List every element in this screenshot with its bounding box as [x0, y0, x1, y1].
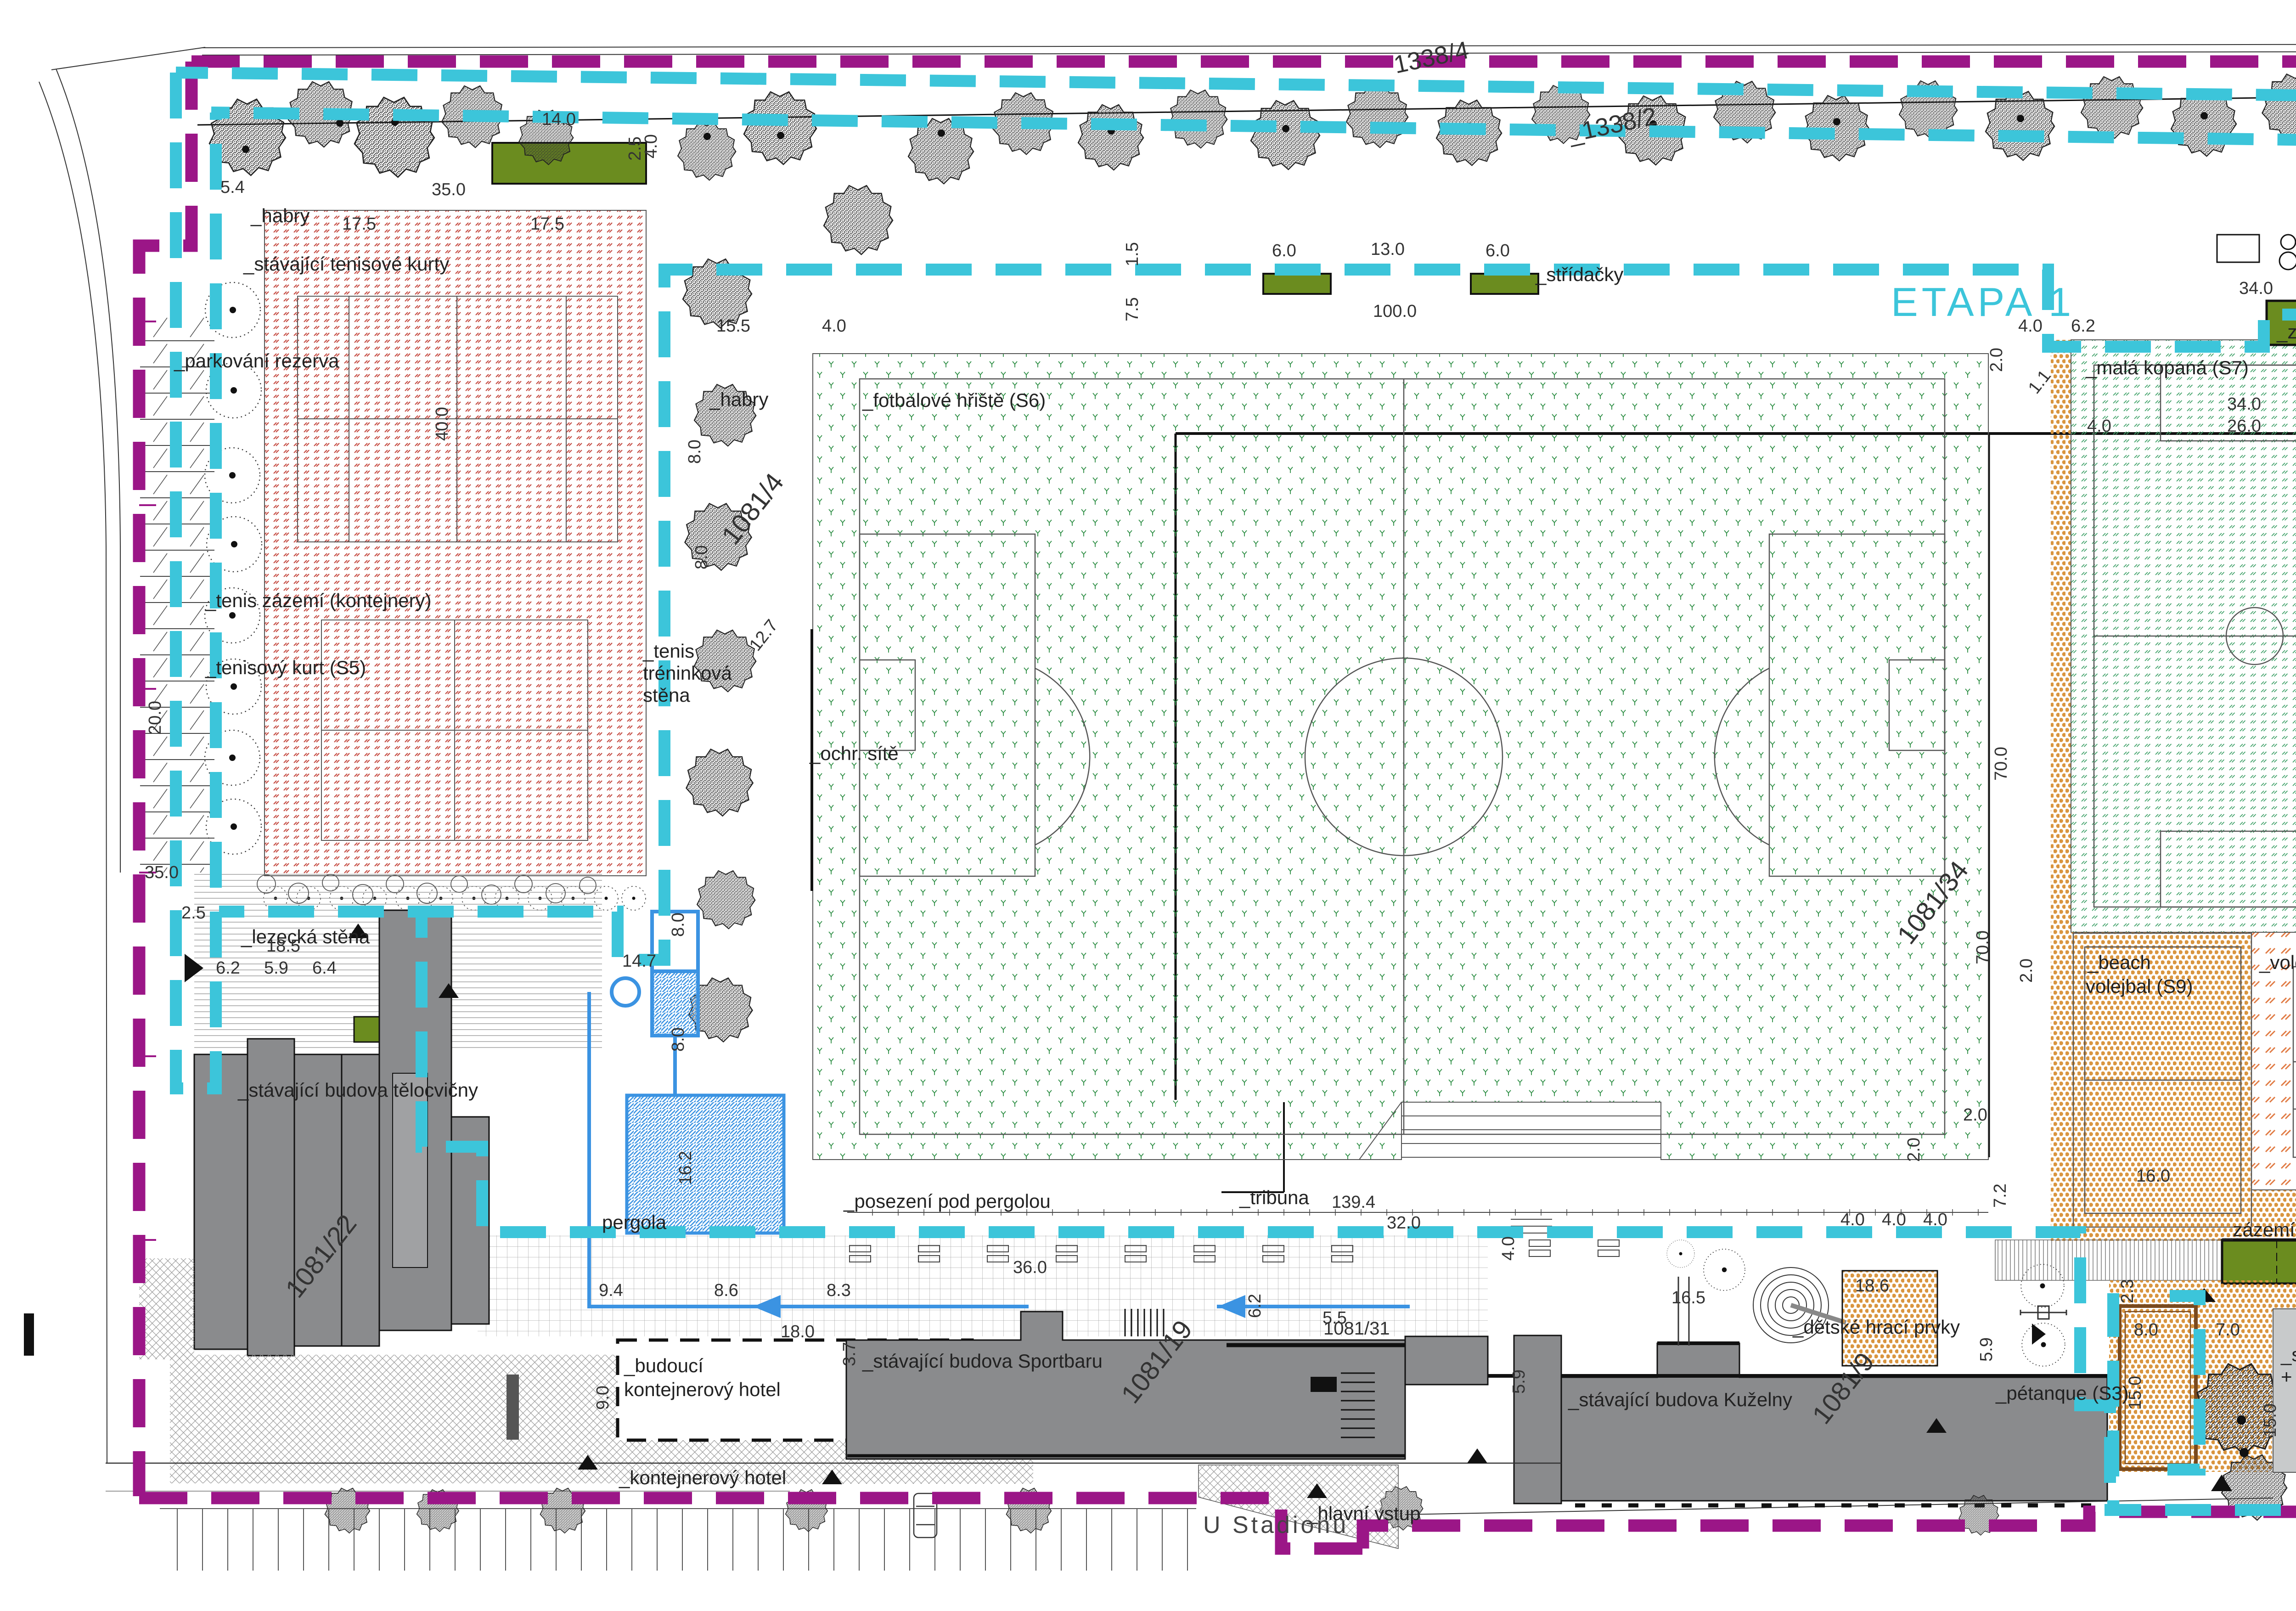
- svg-text:_lezecká stěna: _lezecká stěna: [241, 926, 370, 947]
- svg-text:70.0: 70.0: [1973, 930, 1992, 964]
- svg-text:_pétanque (S3): _pétanque (S3): [1995, 1382, 2129, 1404]
- svg-text:7.0: 7.0: [2216, 1320, 2240, 1340]
- svg-text:2.0: 2.0: [1987, 348, 2006, 372]
- svg-text:5.5: 5.5: [1322, 1308, 1347, 1328]
- svg-text:_stávající budova Sportbaru: _stávající budova Sportbaru: [862, 1350, 1103, 1372]
- svg-text:100.0: 100.0: [1373, 302, 1417, 321]
- svg-text:15.5: 15.5: [716, 316, 750, 336]
- svg-text:6.2: 6.2: [1245, 1294, 1265, 1318]
- svg-text:4.0: 4.0: [1882, 1210, 1906, 1229]
- svg-text:16.2: 16.2: [676, 1151, 695, 1185]
- svg-text:7.5: 7.5: [1123, 297, 1142, 321]
- svg-text:_zázemí volejbal: _zázemí volejbal: [2222, 1219, 2296, 1240]
- svg-text:17.5: 17.5: [530, 214, 564, 234]
- svg-text:36.0: 36.0: [1013, 1258, 1047, 1277]
- svg-text:139.4: 139.4: [1332, 1193, 1375, 1212]
- svg-text:_dětské hrací prvky: _dětské hrací prvky: [1792, 1316, 1960, 1338]
- svg-text:8.0: 8.0: [685, 439, 704, 464]
- svg-text:9.0: 9.0: [593, 1386, 613, 1410]
- svg-text:6.0: 6.0: [1486, 241, 1510, 260]
- svg-text:_volejbal (S8): _volejbal (S8): [2259, 952, 2296, 973]
- svg-text:34.0: 34.0: [2239, 279, 2273, 298]
- svg-text:8.0: 8.0: [669, 913, 688, 937]
- svg-text:8.0: 8.0: [2134, 1320, 2158, 1340]
- svg-text:ETAPA 1: ETAPA 1: [1891, 279, 2075, 325]
- svg-text:6.2: 6.2: [2071, 316, 2095, 336]
- svg-text:_tenisový kurt (S5): _tenisový kurt (S5): [205, 657, 366, 678]
- svg-text:18.6: 18.6: [1855, 1276, 1889, 1296]
- svg-text:4.0: 4.0: [2018, 316, 2043, 336]
- svg-text:_streetball (S11): _streetball (S11): [2280, 1344, 2296, 1365]
- svg-text:U Stadionu: U Stadionu: [1203, 1512, 1349, 1538]
- svg-text:5.9: 5.9: [264, 958, 288, 978]
- svg-text:2.5: 2.5: [181, 903, 206, 923]
- svg-text:8.6: 8.6: [714, 1281, 738, 1300]
- svg-text:stěna: stěna: [643, 684, 690, 706]
- svg-text:8.0: 8.0: [669, 1027, 688, 1052]
- svg-text:16.0: 16.0: [2136, 1166, 2170, 1186]
- svg-text:_parkování rezerva: _parkování rezerva: [174, 350, 339, 372]
- svg-text:18.0: 18.0: [781, 1322, 815, 1341]
- svg-text:_malá kopaná (S7): _malá kopaná (S7): [2085, 357, 2249, 378]
- svg-text:15.0: 15.0: [2261, 1403, 2280, 1437]
- svg-text:tréninková: tréninková: [643, 662, 732, 684]
- svg-text:34.0: 34.0: [2227, 394, 2261, 414]
- svg-text:_beach: _beach: [2087, 952, 2151, 973]
- svg-text:14.7: 14.7: [622, 952, 656, 971]
- svg-text:4.0: 4.0: [1499, 1236, 1518, 1261]
- svg-text:8.3: 8.3: [827, 1281, 851, 1300]
- svg-text:2.0: 2.0: [1963, 1105, 1987, 1125]
- svg-text:4.0: 4.0: [1923, 1210, 1947, 1229]
- svg-text:8.0: 8.0: [692, 545, 711, 569]
- svg-text:6.0: 6.0: [1272, 241, 1296, 260]
- svg-text:+ bruslení: + bruslení: [2281, 1366, 2296, 1387]
- svg-text:13.0: 13.0: [1371, 240, 1405, 259]
- svg-text:18.5: 18.5: [266, 936, 300, 956]
- svg-text:40.0: 40.0: [433, 407, 452, 441]
- svg-text:32.0: 32.0: [1387, 1213, 1421, 1233]
- svg-text:2.3: 2.3: [2118, 1279, 2137, 1303]
- svg-text:16.5: 16.5: [1671, 1288, 1705, 1307]
- svg-text:5.4: 5.4: [220, 178, 245, 197]
- svg-text:_zazemi mala kopaná: _zazemi mala kopaná: [2276, 321, 2296, 343]
- svg-text:_tenis zázemí (kontejnery): _tenis zázemí (kontejnery): [205, 590, 432, 611]
- svg-text:_stávající budova tělocvičny: _stávající budova tělocvičny: [237, 1079, 478, 1101]
- svg-text:_habry: _habry: [709, 389, 768, 410]
- svg-text:3.7: 3.7: [840, 1342, 859, 1366]
- svg-text:volejbal (S9): volejbal (S9): [2086, 975, 2193, 997]
- svg-text:_habry: _habry: [250, 205, 310, 226]
- svg-text:2.0: 2.0: [2017, 958, 2036, 983]
- svg-text:_kontejnerový hotel: _kontejnerový hotel: [619, 1467, 786, 1488]
- svg-text:_střídačky: _střídačky: [1535, 264, 1623, 285]
- svg-text:1.5: 1.5: [1123, 242, 1142, 266]
- svg-text:26.0: 26.0: [2227, 417, 2261, 436]
- svg-text:5.9: 5.9: [1509, 1369, 1529, 1394]
- svg-text:9.4: 9.4: [599, 1281, 623, 1300]
- svg-text:6.2: 6.2: [216, 958, 240, 978]
- svg-text:14.0: 14.0: [542, 110, 576, 129]
- svg-text:_posezení pod pergolou: _posezení pod pergolou: [843, 1190, 1051, 1212]
- svg-text:pergola: pergola: [602, 1211, 667, 1233]
- svg-text:_stávající budova Kuželny: _stávající budova Kuželny: [1568, 1389, 1792, 1410]
- svg-text:70.0: 70.0: [1992, 747, 2011, 781]
- svg-text:kontejnerový hotel: kontejnerový hotel: [624, 1379, 781, 1400]
- svg-text:35.0: 35.0: [432, 180, 466, 199]
- svg-text:4.0: 4.0: [2087, 417, 2111, 436]
- svg-text:7.2: 7.2: [1991, 1183, 2010, 1208]
- svg-text:_budoucí: _budoucí: [624, 1355, 703, 1376]
- svg-text:5.9: 5.9: [1977, 1337, 1996, 1362]
- svg-text:_fotbalové hřiště (S6): _fotbalové hřiště (S6): [862, 389, 1046, 411]
- svg-text:_tenis: _tenis: [642, 640, 694, 662]
- svg-text:_stávající tenisové kurty: _stávající tenisové kurty: [243, 253, 449, 275]
- svg-text:4.0: 4.0: [822, 316, 846, 336]
- svg-text:4.0: 4.0: [642, 134, 661, 158]
- svg-text:6.4: 6.4: [312, 958, 337, 978]
- svg-text:35.0: 35.0: [145, 863, 179, 882]
- svg-text:17.5: 17.5: [342, 214, 376, 234]
- svg-text:4.0: 4.0: [1840, 1210, 1865, 1229]
- svg-text:15.0: 15.0: [2126, 1376, 2145, 1410]
- svg-text:_ochr. sítě: _ochr. sítě: [809, 743, 899, 764]
- svg-text:_tribuna: _tribuna: [1239, 1187, 1309, 1208]
- svg-text:2.0: 2.0: [1904, 1138, 1924, 1162]
- svg-text:20.0: 20.0: [146, 701, 165, 735]
